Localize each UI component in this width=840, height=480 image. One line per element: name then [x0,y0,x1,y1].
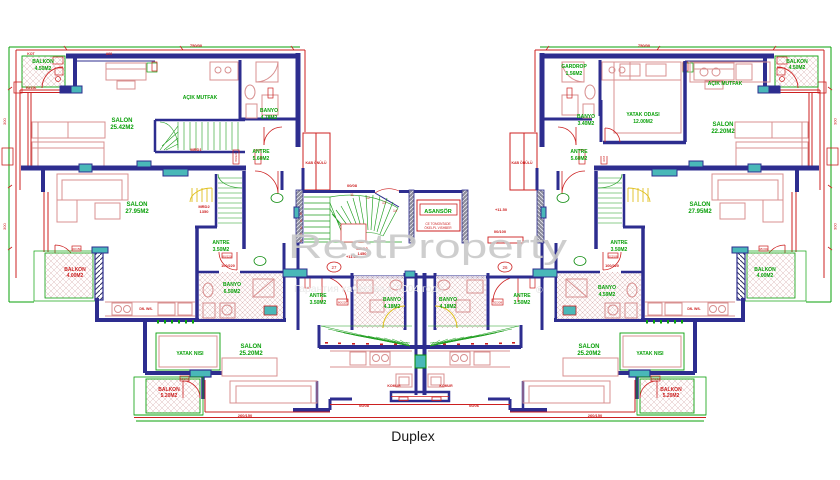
svg-text:A00: A00 [106,52,112,56]
svg-text:1350: 1350 [200,209,210,214]
svg-text:YATAK NISI: YATAK NISI [176,351,204,357]
svg-text:12.00M2: 12.00M2 [633,119,653,125]
svg-text:KOMUR: KOMUR [387,384,401,388]
svg-text:SALON: SALON [579,344,600,350]
svg-text:3.50M2: 3.50M2 [514,300,531,306]
svg-text:KAB ÖNÜLÜ: KAB ÖNÜLÜ [512,161,533,165]
svg-text:4.50M2: 4.50M2 [35,66,52,72]
svg-text:ASANSÖR: ASANSÖR [424,208,452,215]
svg-text:4.18M2: 4.18M2 [384,304,401,310]
svg-text:ANTRE: ANTRE [513,293,531,299]
svg-text:80/220: 80/220 [222,255,232,259]
svg-text:1.56M2: 1.56M2 [566,71,583,77]
svg-text:MRD1: MRD1 [190,147,202,152]
svg-text:KAB ÖNÜLÜ: KAB ÖNÜLÜ [306,161,327,165]
svg-text:750/00: 750/00 [190,43,203,48]
svg-text:80/220: 80/220 [234,152,238,162]
svg-text:KOMUR: KOMUR [439,384,453,388]
svg-text:DfL WfL: DfL WfL [687,307,701,311]
svg-text:00/06: 00/06 [469,403,480,408]
svg-text:4.00M2: 4.00M2 [67,273,84,279]
svg-text:4.59M2: 4.59M2 [599,292,616,298]
svg-text:ANTRE: ANTRE [252,149,270,155]
svg-text:80/220: 80/220 [338,301,348,305]
svg-text:4: 4 [300,219,302,223]
svg-text:12: 12 [366,196,370,200]
svg-text:5: 5 [300,212,302,216]
svg-text:300: 300 [2,223,7,230]
svg-text:DfL WfL: DfL WfL [139,307,153,311]
svg-text:4.18M2: 4.18M2 [440,304,457,310]
svg-text:5.60M2: 5.60M2 [253,156,270,162]
svg-text:3.50M2: 3.50M2 [213,247,230,253]
svg-text:ANTRE: ANTRE [570,149,588,155]
svg-text:90/150: 90/150 [26,86,37,90]
svg-text:KOT: KOT [27,52,35,56]
svg-text:5.20M2: 5.20M2 [663,393,680,399]
svg-text:27.95M2: 27.95M2 [125,209,149,215]
svg-text:BANYO: BANYO [223,282,241,288]
svg-text:YATAK NISI: YATAK NISI [636,351,664,357]
svg-text:27.95M2: 27.95M2 [688,209,712,215]
svg-text:BANYO: BANYO [598,285,616,291]
svg-text:BANYO: BANYO [383,297,401,303]
svg-text:Гарантия качества с 2004 года: Гарантия качества с 2004 года [294,283,443,295]
svg-text:25.42M2: 25.42M2 [110,125,134,131]
svg-text:260/150: 260/150 [238,413,253,418]
svg-text:SALON: SALON [713,122,734,128]
svg-text:4.78M2: 4.78M2 [261,115,278,121]
svg-text:60/240: 60/240 [180,377,190,381]
svg-text:5.20M2: 5.20M2 [161,393,178,399]
svg-text:3.40M2: 3.40M2 [578,121,595,127]
svg-text:750/00: 750/00 [638,43,651,48]
svg-text:22.20M2: 22.20M2 [711,129,735,135]
svg-text:6.50M2: 6.50M2 [224,289,241,295]
svg-text:25.20M2: 25.20M2 [577,351,601,357]
svg-text:YATAK ODASI: YATAK ODASI [626,112,660,118]
svg-text:90/150: 90/150 [72,247,82,251]
svg-text:SALON: SALON [690,202,711,208]
svg-text:+11.50: +11.50 [495,207,508,212]
svg-text:SALON: SALON [112,118,133,124]
svg-text:11: 11 [350,193,354,197]
svg-text:SALON: SALON [241,344,262,350]
svg-text:25.20M2: 25.20M2 [239,351,263,357]
svg-text:3.50M2: 3.50M2 [310,300,327,306]
svg-text:BANYO: BANYO [439,297,457,303]
svg-text:AÇIK MUTFAK: AÇIK MUTFAK [183,95,218,101]
svg-text:100/220: 100/220 [221,264,235,268]
svg-text:4.50M2: 4.50M2 [789,65,806,71]
svg-text:3.50M2: 3.50M2 [611,247,628,253]
svg-text:00/08: 00/08 [359,403,370,408]
svg-text:BANYO: BANYO [577,114,595,120]
svg-text:GARDROP: GARDROP [561,64,587,70]
svg-text:RestProperty: RestProperty [288,228,567,266]
svg-text:4.00M2: 4.00M2 [757,273,774,279]
svg-text:00/08: 00/08 [347,183,358,188]
svg-text:BALKON: BALKON [32,59,54,65]
svg-text:26: 26 [502,265,508,270]
svg-text:ANTRE: ANTRE [610,240,628,246]
svg-text:100/220: 100/220 [605,264,619,268]
svg-text:®: ® [536,285,543,295]
svg-text:13: 13 [382,201,386,205]
svg-text:27: 27 [331,265,337,270]
svg-text:SALON: SALON [127,202,148,208]
svg-text:AÇIK MUTFAK: AÇIK MUTFAK [708,81,743,87]
svg-text:300: 300 [2,118,7,125]
svg-text:260/150: 260/150 [588,413,603,418]
svg-text:5.60M2: 5.60M2 [571,156,588,162]
svg-text:Duplex: Duplex [391,428,435,444]
svg-text:14: 14 [393,209,397,213]
svg-text:BANYO: BANYO [260,108,278,114]
svg-text:ANTRE: ANTRE [212,240,230,246]
